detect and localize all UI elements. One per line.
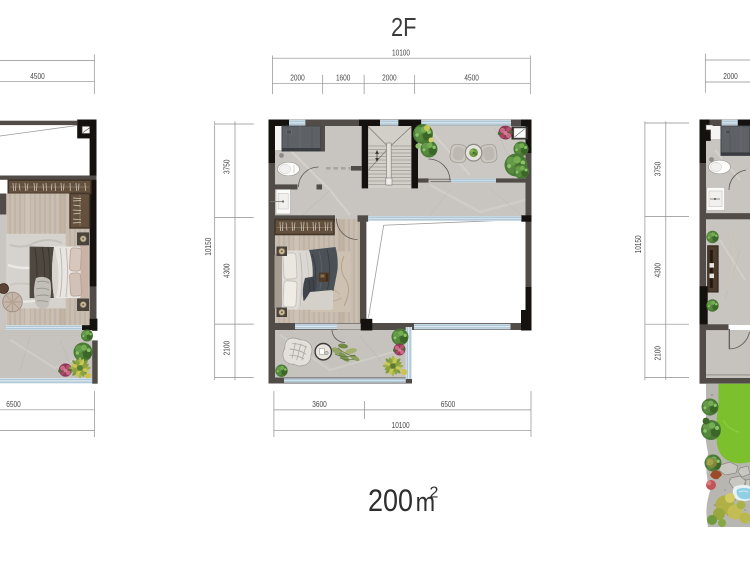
svg-text:4300: 4300 — [654, 262, 663, 277]
svg-text:2000: 2000 — [382, 74, 397, 83]
svg-text:2000: 2000 — [723, 72, 738, 81]
svg-text:10100: 10100 — [392, 49, 411, 58]
svg-text:3750: 3750 — [223, 159, 232, 174]
svg-text:3600: 3600 — [312, 400, 327, 409]
svg-text:200: 200 — [368, 482, 413, 518]
svg-text:2100: 2100 — [654, 346, 663, 361]
svg-text:2: 2 — [430, 485, 439, 502]
svg-text:6500: 6500 — [441, 400, 456, 409]
svg-text:3750: 3750 — [654, 161, 663, 176]
svg-text:10150: 10150 — [634, 235, 643, 254]
svg-text:10150: 10150 — [204, 237, 213, 256]
svg-text:4500: 4500 — [30, 72, 45, 81]
svg-text:4300: 4300 — [223, 263, 232, 278]
svg-text:2100: 2100 — [223, 340, 232, 355]
svg-text:4500: 4500 — [464, 74, 479, 83]
svg-text:10100: 10100 — [392, 421, 411, 430]
svg-text:2F: 2F — [391, 14, 417, 42]
svg-text:1600: 1600 — [336, 74, 351, 83]
svg-text:2000: 2000 — [290, 74, 305, 83]
svg-text:6500: 6500 — [6, 400, 21, 409]
